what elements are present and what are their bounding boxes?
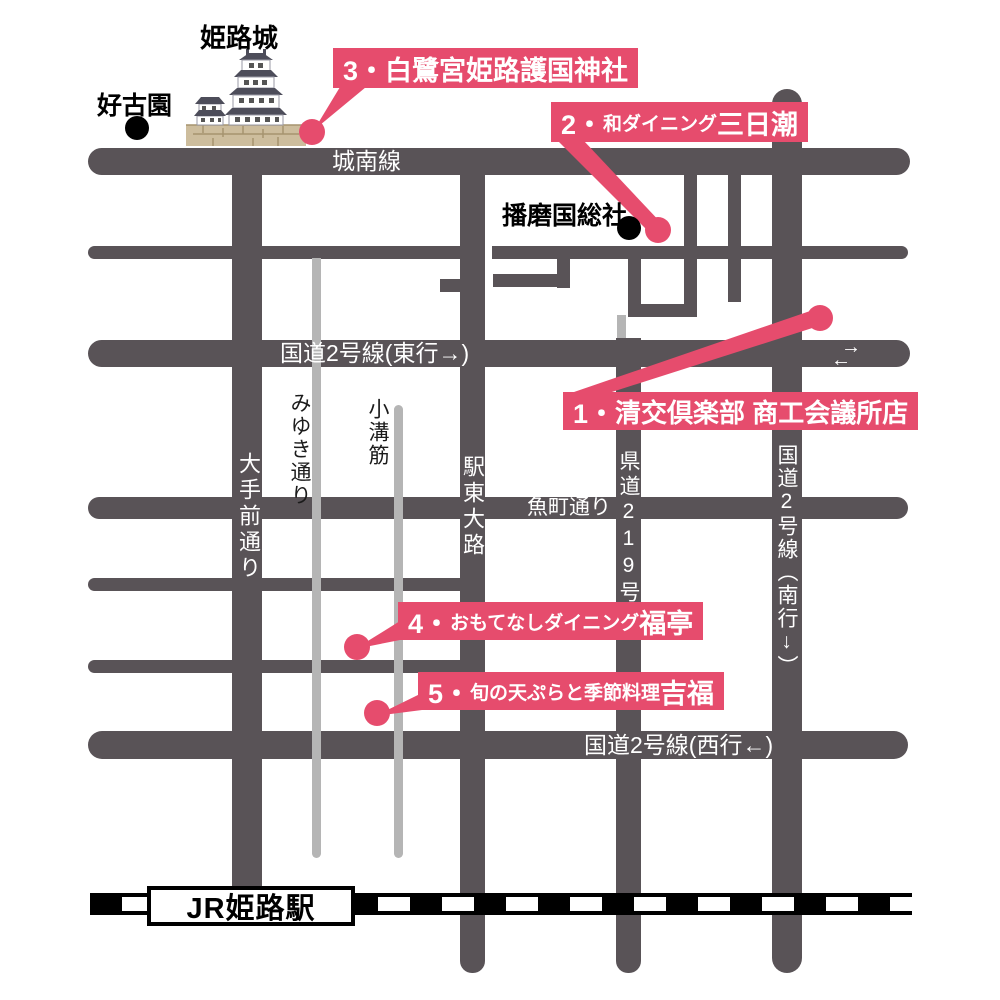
marker-dot-3 [299,119,325,145]
marker-2-number: 2・ [561,103,603,142]
marker-label-3: 3・白鷺宮姫路護国神社 [333,48,638,88]
himeji-castle-illustration [183,46,309,148]
road-label-route2-south: 国道2号線︵南行↓︶ [776,444,797,678]
two-way-arrows: → ← [831,341,861,367]
road-label-miyuki: みゆき通り [289,392,310,507]
road-label-komizo: 小溝筋 [367,398,388,467]
marker-3-number: 3・ [343,49,385,88]
marker-5-subtext: 旬の天ぷらと季節料理 [470,678,660,705]
road-label-ekito: 駅東大路 [461,455,483,559]
kendo-219-gray-stub [617,315,626,338]
road-ekito-oji [460,148,485,973]
marker-3-name: 白鷺宮姫路護国神社 [385,49,628,88]
marker-1-number: 1・ [573,392,615,431]
road-row2-west-segment [88,246,460,259]
marker-5-name: 吉福 [660,672,714,711]
road-label-route2-east: 国道2号線(東行→) [280,340,469,367]
road-stub-row-1 [88,578,460,591]
station-name: JR姫路駅 [186,885,315,927]
marker-2-name: 三日潮 [717,103,798,142]
marker-4-number: 4・ [408,602,450,641]
marker-label-4: 4・おもてなしダイニング福亭 [398,602,703,640]
road-label-jonan: 城南線 [332,148,401,175]
back-street-vertical-3 [557,258,570,288]
station-label-box: JR姫路駅 [147,886,355,926]
marker-4-name: 福亭 [639,602,693,641]
castle-label: 姫路城 [200,18,278,55]
back-street-horizontal-2 [628,304,697,317]
marker-dot-5 [364,700,390,726]
road-kendo-219 [616,338,641,973]
west-arrow-icon: ← [831,354,861,367]
back-street-stub [440,279,460,292]
marker-label-1: 1・清交倶楽部 商工会議所店 [563,392,918,430]
road-row2-east-segment [492,246,908,259]
road-label-otemae: 大手前通り [237,452,259,582]
road-label-uomachi: 魚町通り [527,497,611,519]
road-stub-row-2 [88,660,460,673]
marker-4-subtext: おもてなしダイニング [450,608,639,635]
himeji-access-map: JR姫路駅 3・白鷺宮 [0,0,1000,1000]
road-label-kendo219: 県道219号 [618,450,639,606]
shrine-label: 播磨国総社 [502,196,627,232]
marker-dot-1 [807,305,833,331]
marker-1-name: 清交倶楽部 商工会議所店 [615,393,908,430]
marker-2-subtext: 和ダイニング [603,109,717,136]
marker-dot-4 [344,634,370,660]
marker-dot-2 [645,217,671,243]
marker-label-2: 2・和ダイニング三日潮 [551,102,808,142]
back-street-vertical-2 [728,172,741,302]
back-street-vertical-1 [684,172,697,317]
garden-label: 好古園 [97,86,172,122]
road-label-route2-west: 国道2号線(西行←) [584,731,773,759]
marker-5-number: 5・ [428,672,470,711]
marker-label-5: 5・旬の天ぷらと季節料理吉福 [418,672,724,710]
